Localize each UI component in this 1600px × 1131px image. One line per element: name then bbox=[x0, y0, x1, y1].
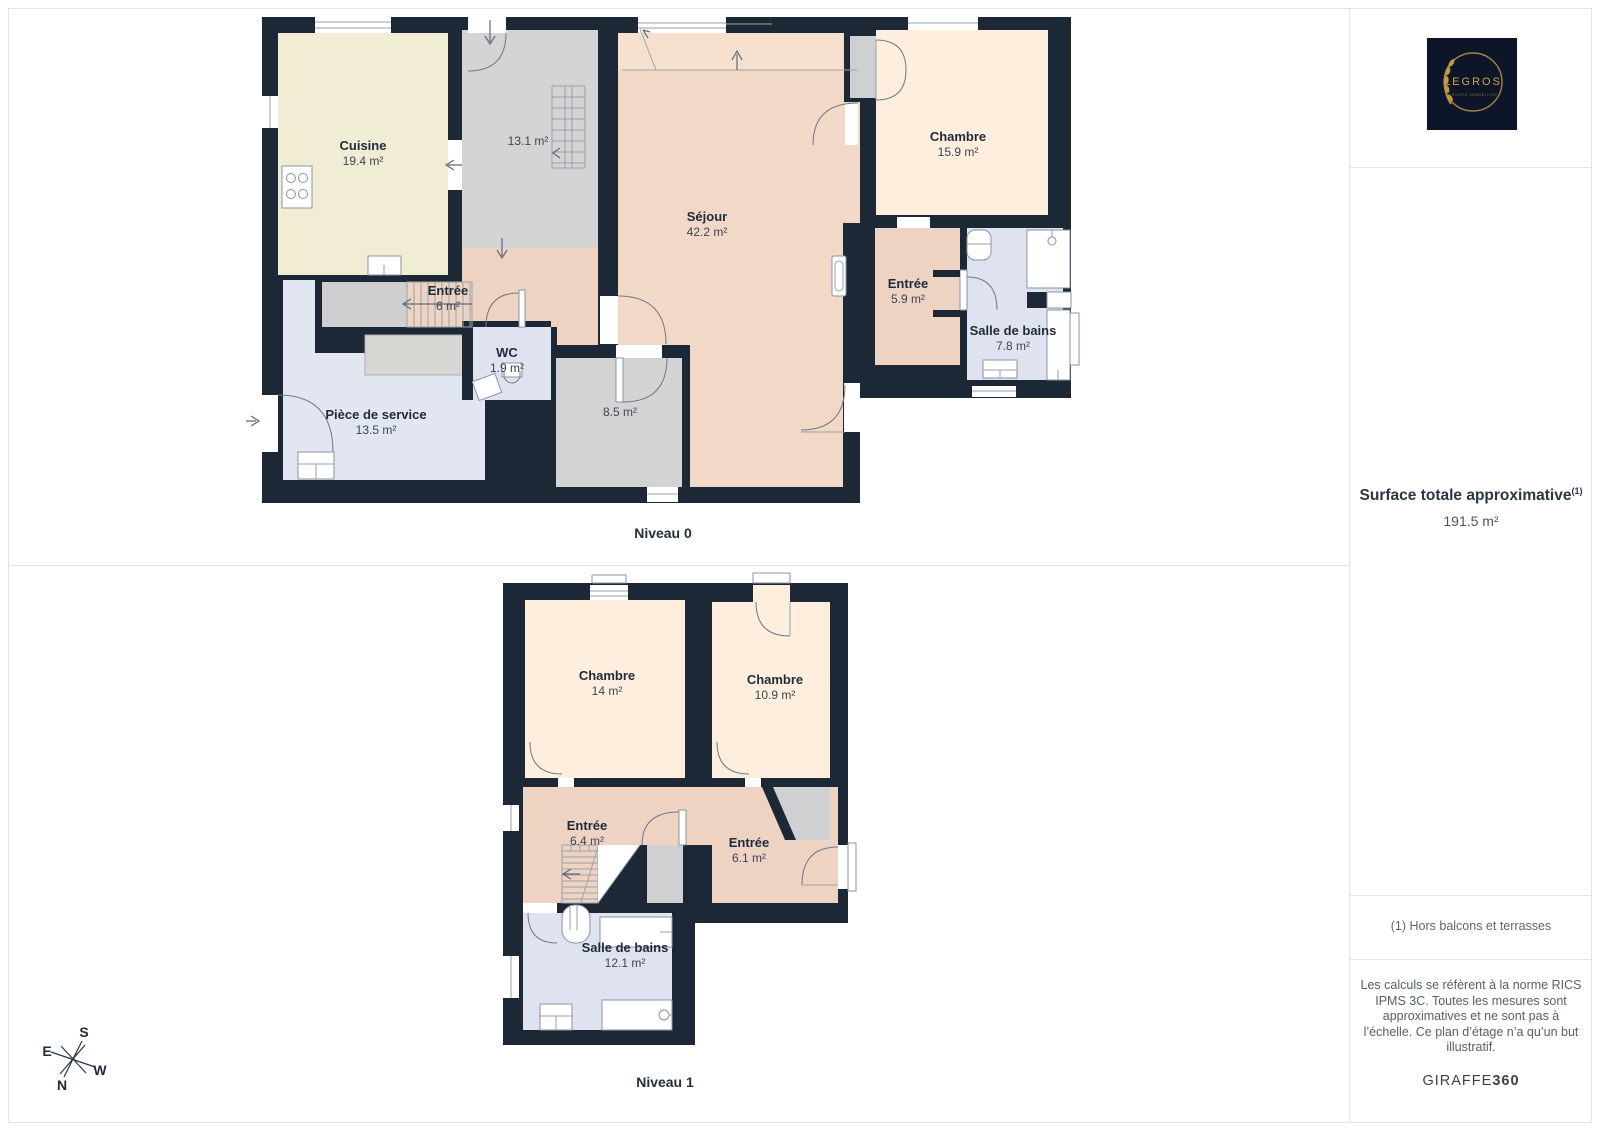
floorplan-niveau-0: Cuisine 19.4 m² 13.1 m² Séjour 42.2 m² C… bbox=[246, 17, 1079, 541]
gray-patch-n1 bbox=[647, 845, 683, 903]
compass-rose: S E W N bbox=[42, 1024, 107, 1093]
compass-east: E bbox=[42, 1043, 51, 1059]
area-piece-service: 13.5 m² bbox=[356, 423, 397, 437]
room-chambre-0 bbox=[876, 30, 1048, 215]
area-wc: 1.9 m² bbox=[490, 361, 524, 375]
label-chambre-14: Chambre bbox=[579, 668, 635, 683]
agency-logo: LEGROS GROUPE IMMOBILIER bbox=[1427, 38, 1517, 130]
floors-divider bbox=[8, 565, 1349, 566]
label-entree-61: Entrée bbox=[729, 835, 769, 850]
surface-footnote: (1) Hors balcons et terrasses bbox=[1352, 919, 1590, 933]
floor-caption-1: Niveau 1 bbox=[636, 1074, 694, 1090]
label-chambre-109: Chambre bbox=[747, 672, 803, 687]
label-sdb-121: Salle de bains bbox=[582, 940, 669, 955]
surface-total-title: Surface totale approximative(1) bbox=[1352, 486, 1590, 505]
floorplan-niveau-1: Chambre 14 m² Chambre 10.9 m² Entrée 6.4… bbox=[503, 573, 856, 1090]
compass-north: N bbox=[57, 1077, 67, 1093]
area-cuisine: 19.4 m² bbox=[343, 154, 384, 168]
label-sdb-78: Salle de bains bbox=[970, 323, 1057, 338]
area-sejour: 42.2 m² bbox=[687, 225, 728, 239]
service-counter bbox=[365, 335, 468, 375]
compass-west: W bbox=[93, 1062, 107, 1078]
surface-footnote-marker: (1) bbox=[1571, 486, 1582, 496]
wc-wall bbox=[462, 321, 551, 327]
credit-suffix: 360 bbox=[1492, 1073, 1519, 1089]
credit-brand: GIRAFFE bbox=[1422, 1073, 1492, 1089]
sejour-mezzanine-zone bbox=[618, 33, 843, 70]
area-chambre-14: 14 m² bbox=[592, 684, 623, 698]
measurement-disclaimer: Les calculs se réfèrent à la norme RICS … bbox=[1360, 978, 1582, 1056]
label-entree-64: Entrée bbox=[567, 818, 607, 833]
sidebar-line-2 bbox=[1350, 895, 1592, 896]
surface-total-value: 191.5 m² bbox=[1352, 513, 1590, 529]
floorplan-page: Cuisine 19.4 m² 13.1 m² Séjour 42.2 m² C… bbox=[0, 0, 1600, 1131]
label-cuisine: Cuisine bbox=[340, 138, 387, 153]
gray-patch bbox=[322, 282, 407, 327]
area-sdb-121: 12.1 m² bbox=[605, 956, 646, 970]
label-entree-6: Entrée bbox=[428, 283, 468, 298]
label-piece-service: Pièce de service bbox=[325, 407, 426, 422]
sidebar-line-1 bbox=[1350, 167, 1592, 168]
room-entree-61 bbox=[712, 845, 838, 903]
wc-wall-l bbox=[462, 327, 473, 400]
floor-caption-0: Niveau 0 bbox=[634, 525, 692, 541]
label-sejour: Séjour bbox=[687, 209, 727, 224]
area-entree-61: 6.1 m² bbox=[732, 851, 766, 865]
giraffe360-credit: GIRAFFE360 bbox=[1352, 1073, 1590, 1089]
area-degagement: 13.1 m² bbox=[508, 134, 549, 148]
label-entree-59: Entrée bbox=[888, 276, 928, 291]
area-chambre-109: 10.9 m² bbox=[755, 688, 796, 702]
label-chambre-0: Chambre bbox=[930, 129, 986, 144]
sidebar-line-3 bbox=[1350, 959, 1592, 960]
vestibule bbox=[850, 36, 876, 98]
logo-brand-text: LEGROS bbox=[1444, 76, 1502, 88]
room-entree-64 bbox=[523, 845, 562, 903]
sidebar-divider bbox=[1349, 8, 1350, 1123]
balcony-niche bbox=[753, 585, 790, 604]
area-sdb-78: 7.8 m² bbox=[996, 339, 1030, 353]
area-chambre-0: 15.9 m² bbox=[938, 145, 979, 159]
area-entree-64: 6.4 m² bbox=[570, 834, 604, 848]
logo-graphic: LEGROS GROUPE IMMOBILIER bbox=[1427, 38, 1517, 130]
surface-total-block: Surface totale approximative(1) 191.5 m² bbox=[1352, 486, 1590, 529]
area-entree-6: 6 m² bbox=[436, 299, 460, 313]
area-entree-59: 5.9 m² bbox=[891, 292, 925, 306]
logo-tagline-text: GROUPE IMMOBILIER bbox=[1448, 93, 1497, 97]
area-8-5: 8.5 m² bbox=[603, 405, 637, 419]
label-wc: WC bbox=[496, 345, 518, 360]
compass-south: S bbox=[79, 1024, 88, 1040]
